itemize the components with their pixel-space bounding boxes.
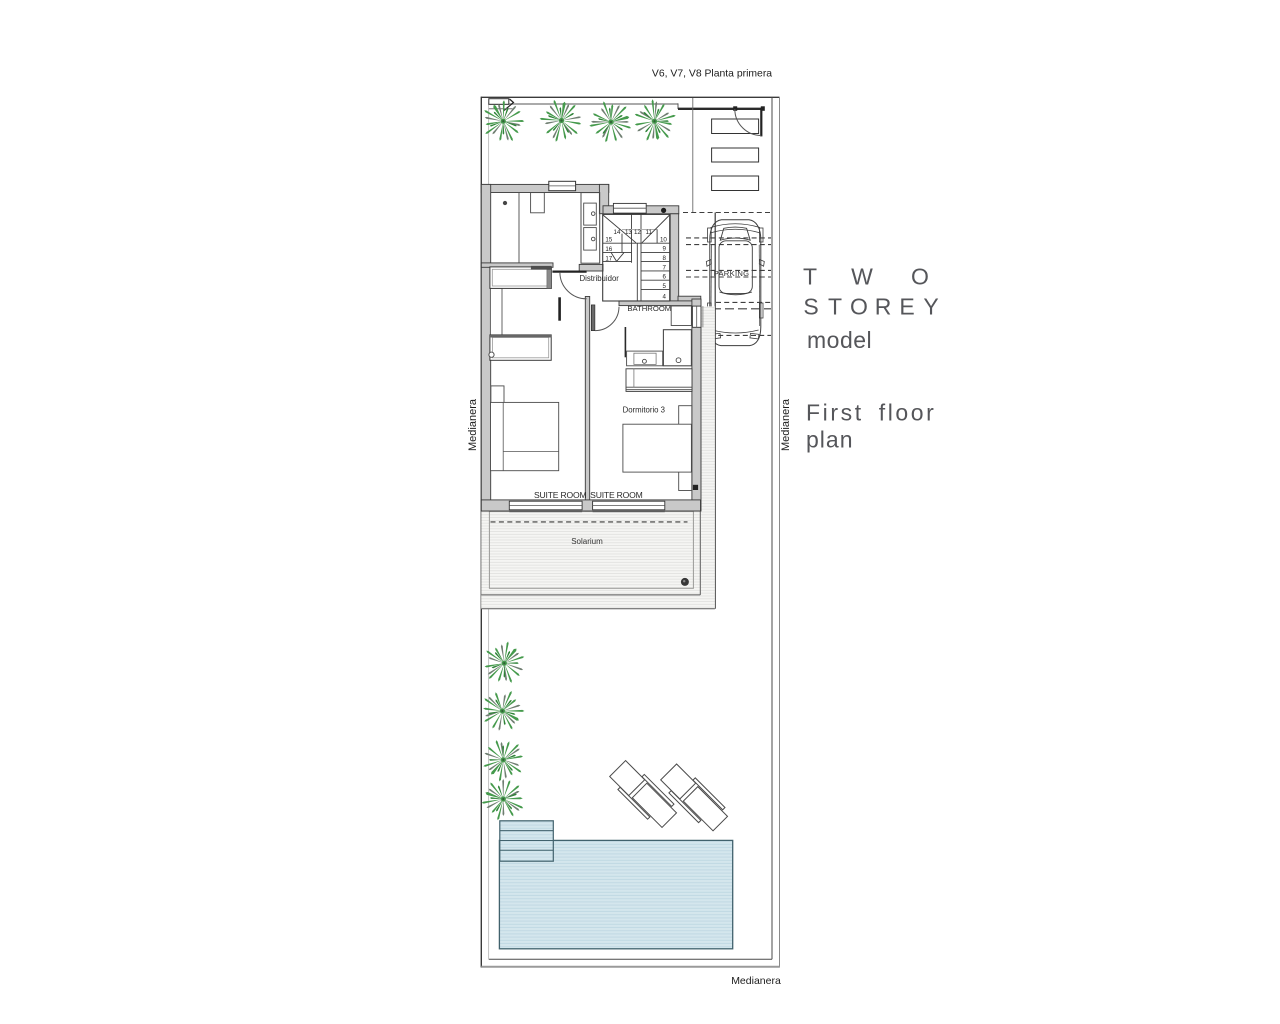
svg-text:First floor: First floor: [806, 400, 936, 426]
svg-text:6: 6: [662, 274, 666, 281]
svg-text:SUITE ROOM: SUITE ROOM: [590, 490, 642, 500]
svg-text:plan: plan: [806, 427, 853, 453]
svg-text:Medianera: Medianera: [467, 398, 479, 451]
svg-text:16: 16: [605, 246, 612, 253]
svg-text:SUITE ROOM: SUITE ROOM: [534, 490, 586, 500]
svg-text:Medianera: Medianera: [780, 398, 792, 451]
svg-text:11: 11: [646, 229, 653, 236]
svg-text:9: 9: [662, 246, 666, 253]
svg-text:14: 14: [614, 229, 621, 236]
svg-text:V6, V7, V8 Planta primera: V6, V7, V8 Planta primera: [652, 69, 772, 80]
svg-text:5: 5: [662, 283, 666, 290]
svg-text:BATHROOM: BATHROOM: [627, 304, 671, 313]
svg-text:model: model: [807, 327, 872, 353]
svg-text:15: 15: [605, 237, 612, 244]
svg-text:8: 8: [662, 255, 666, 262]
svg-text:Medianera: Medianera: [731, 975, 781, 987]
svg-text:Solarium: Solarium: [571, 537, 603, 546]
svg-text:4: 4: [662, 294, 666, 301]
svg-text:10: 10: [660, 237, 667, 244]
svg-text:17: 17: [605, 255, 612, 262]
svg-text:Distribuidor: Distribuidor: [579, 274, 619, 283]
svg-text:13: 13: [625, 229, 632, 236]
svg-text:12: 12: [634, 229, 641, 236]
svg-text:7: 7: [662, 264, 666, 271]
svg-text:Dormitorio 3: Dormitorio 3: [623, 406, 665, 415]
svg-text:PARKING: PARKING: [714, 269, 750, 278]
